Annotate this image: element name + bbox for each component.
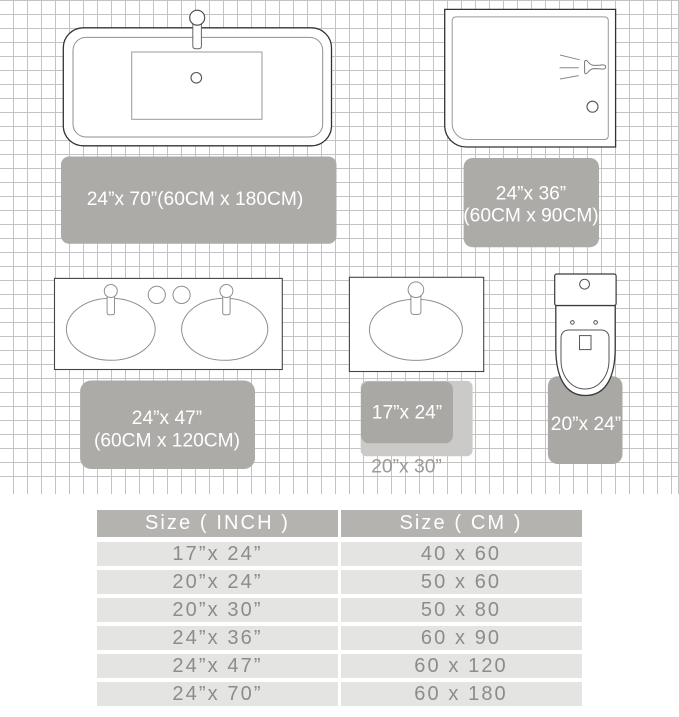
svg-text:24”x 47”: 24”x 47” — [132, 408, 202, 429]
svg-text:24”x 70”(60CM x 180CM): 24”x 70”(60CM x 180CM) — [87, 189, 303, 210]
svg-text:24”x 36”: 24”x 36” — [496, 183, 566, 204]
svg-text:20”x 24”: 20”x 24” — [551, 414, 621, 435]
svg-text:(60CM x 120CM): (60CM x 120CM) — [94, 431, 240, 452]
svg-text:(60CM x 90CM): (60CM x 90CM) — [463, 205, 598, 226]
svg-text:20”x 30”: 20”x 30” — [371, 457, 442, 478]
svg-text:17”x 24”: 17”x 24” — [372, 402, 442, 423]
